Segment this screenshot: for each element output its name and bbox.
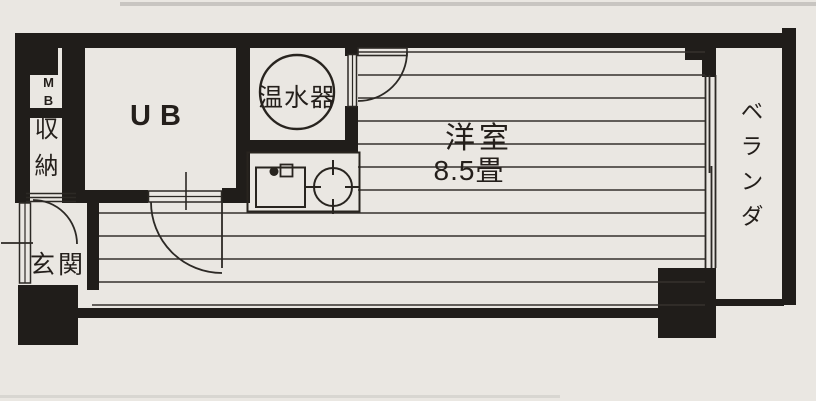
faucet-knob-icon: [270, 167, 279, 176]
faucet-box-icon: [281, 165, 293, 177]
main-room-size: 8.5畳: [399, 149, 539, 189]
wall-bottom: [78, 308, 658, 318]
wall-entrance-block: [18, 285, 78, 345]
pillar-top-right-b: [702, 58, 716, 77]
heater-closet-door-arc: [358, 52, 407, 101]
pillar-bottom-right: [658, 268, 716, 338]
pillar-top-right-a: [685, 33, 716, 60]
wall-unitbath-bottom: [70, 190, 148, 203]
stove-burner-icon: [306, 160, 360, 214]
wall-meterbox-right: [62, 40, 85, 203]
storage-label: 収納: [31, 116, 61, 190]
veranda-label: ベランダ: [739, 99, 767, 239]
entrance-door-arc: [33, 200, 77, 244]
kitchen-unit: [248, 153, 361, 215]
sliding-window: [706, 75, 716, 268]
wall-heater-closet-right-top: [345, 40, 358, 56]
wall-heater-closet-bottom: [248, 140, 358, 152]
floor-plan: MB 収納 玄関 UB 温水器 洋室 8.5畳 ベランダ: [0, 0, 816, 401]
door-swings: [1, 48, 407, 273]
wall-heater-closet-right-bottom: [345, 106, 358, 146]
floor-plan-drawing: [0, 0, 816, 401]
unit-bath-label: UB: [105, 100, 215, 133]
wall-veranda-right: [782, 28, 796, 305]
meter-box-label: MB: [36, 75, 56, 111]
entrance-label: 玄関: [26, 245, 90, 281]
water-heater-label: 温水器: [249, 78, 345, 114]
wall-top: [15, 33, 796, 48]
wall-veranda-bottom: [710, 299, 784, 306]
